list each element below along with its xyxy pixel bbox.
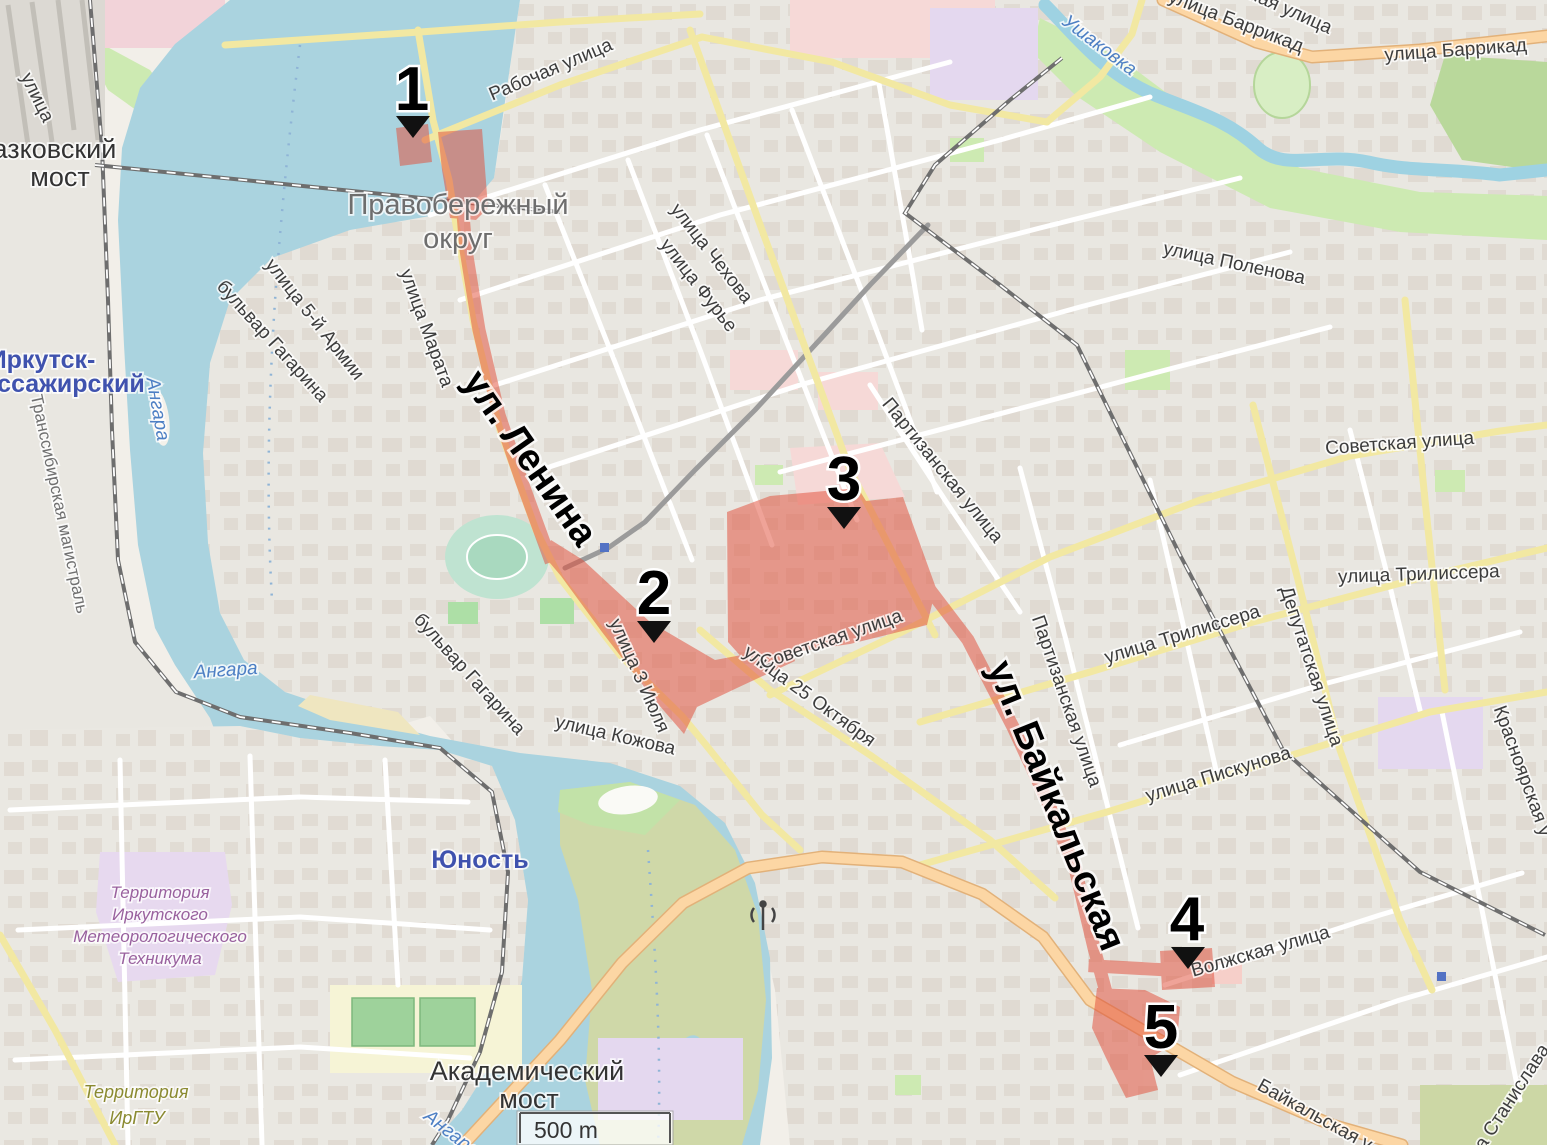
district-label-pravoberezhny-1: Правобережный	[347, 189, 568, 221]
bridge-label-akadem-1: Академический	[430, 1056, 624, 1086]
svg-text:2: 2	[637, 559, 671, 628]
transit-stop2-icon	[1437, 972, 1446, 981]
area-label-met-1: Территория	[110, 883, 209, 902]
railway-yard	[0, 0, 105, 150]
area-label-met-4: Техникума	[118, 949, 201, 968]
area-label-irgtu-2: ИрГТУ	[109, 1108, 166, 1128]
scale-bar: 500 m	[517, 1111, 673, 1145]
area-label-met-2: Иркутского	[112, 905, 208, 924]
transit-stop-icon	[600, 543, 609, 552]
place-label-yunost: Юность	[431, 846, 528, 874]
svg-text:1: 1	[395, 55, 429, 124]
city-map[interactable]: улица Глазковский мост Иркутск- Пассажир…	[0, 0, 1547, 1145]
bridge-label-akadem-2: мост	[499, 1084, 558, 1114]
bridge-label-glazkovsky-2: мост	[30, 162, 89, 192]
svg-text:3: 3	[827, 445, 861, 514]
bridge-label-glazkovsky-1: Глазковский	[0, 134, 116, 164]
scale-label: 500 m	[534, 1117, 598, 1143]
svg-text:5: 5	[1144, 993, 1178, 1062]
district-label-pravoberezhny-2: округ	[423, 223, 493, 255]
svg-text:4: 4	[1170, 885, 1205, 954]
area-label-irgtu-1: Территория	[84, 1082, 189, 1102]
area-label-met-3: Метеорологического	[73, 927, 247, 946]
station-label-irkutsk-2: Пассажирский	[0, 370, 145, 398]
